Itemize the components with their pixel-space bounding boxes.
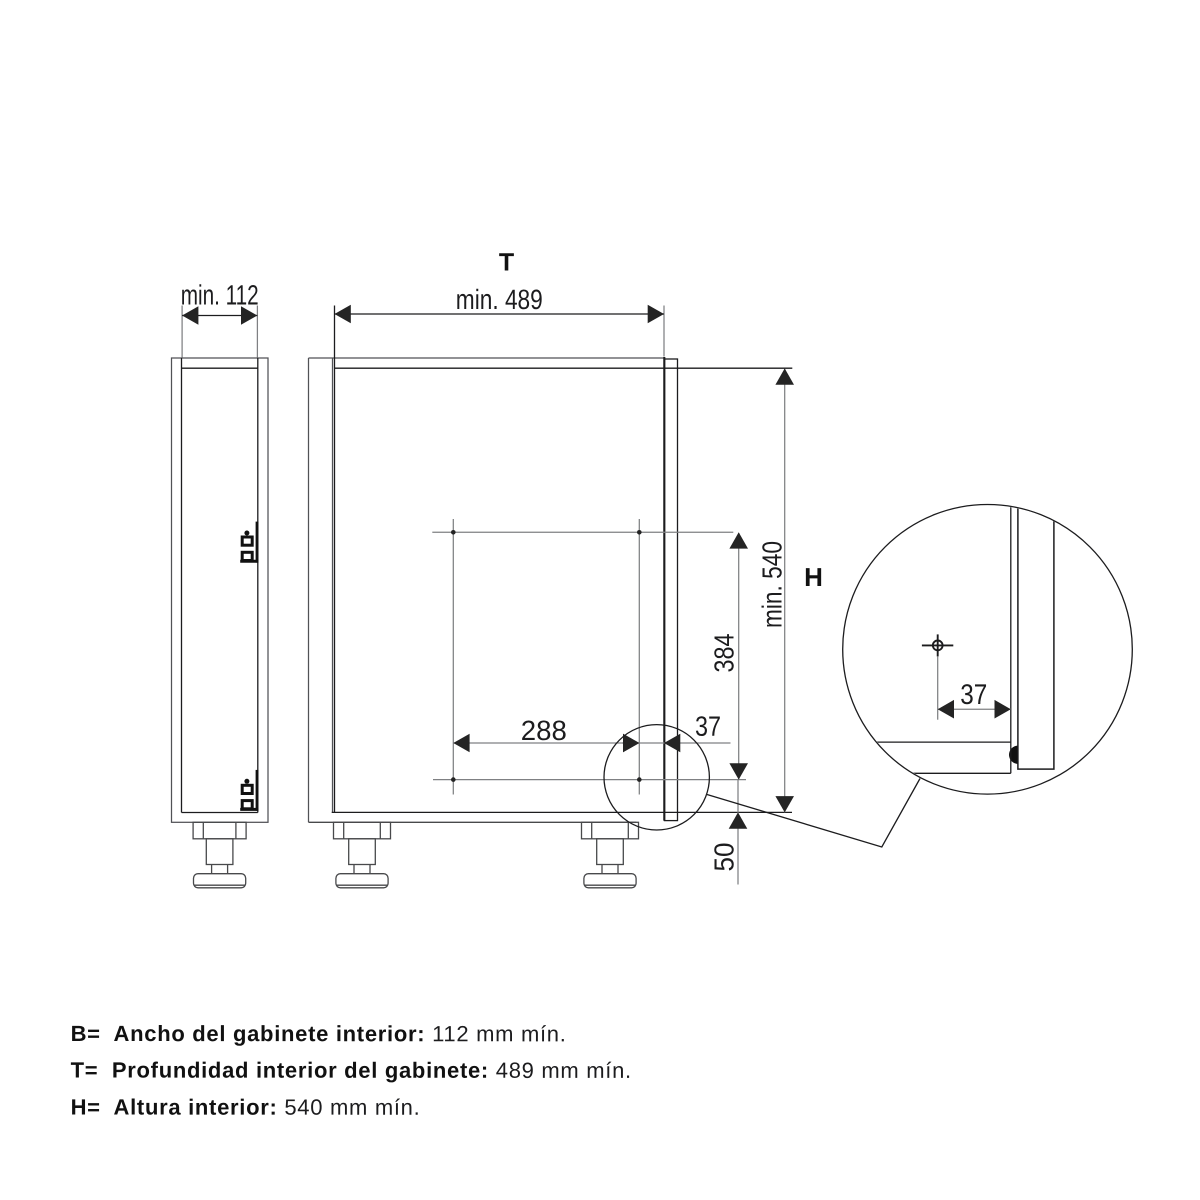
svg-text:288: 288 [521, 715, 567, 746]
svg-text:37: 37 [695, 711, 721, 742]
svg-text:min. 112: min. 112 [181, 279, 259, 310]
svg-text:50: 50 [709, 843, 740, 872]
svg-text:T= Profundidad interior del g: T= Profundidad interior del gabinete: 48… [71, 1058, 632, 1083]
svg-text:min. 540: min. 540 [756, 541, 787, 628]
svg-text:B= Ancho del gabinete interio: B= Ancho del gabinete interior: 112 mm m… [71, 1021, 567, 1046]
svg-text:T: T [499, 248, 514, 276]
svg-text:min. 489: min. 489 [456, 284, 543, 315]
svg-text:H: H [804, 562, 823, 592]
svg-text:37: 37 [960, 679, 987, 711]
svg-text:H= Altura interior: 540 mm mí: H= Altura interior: 540 mm mín. [71, 1095, 421, 1120]
svg-text:384: 384 [709, 634, 740, 673]
